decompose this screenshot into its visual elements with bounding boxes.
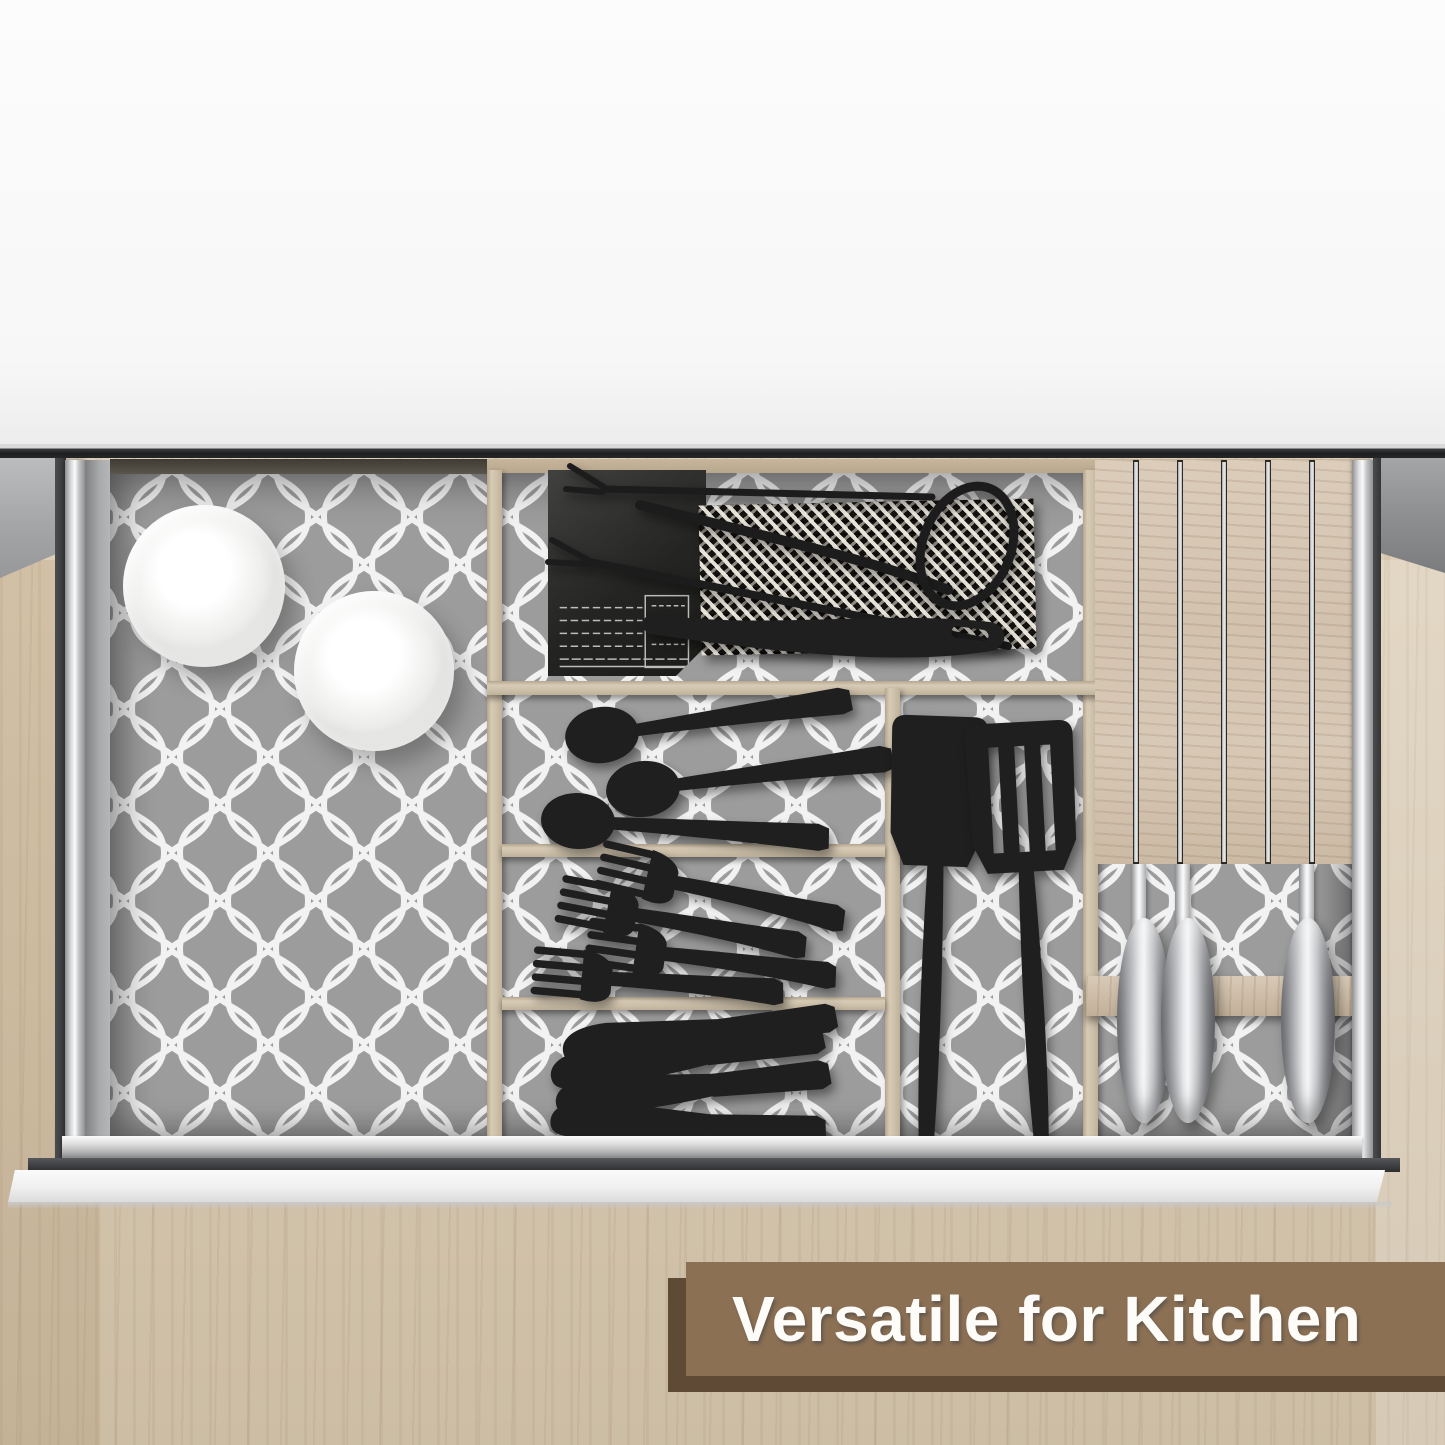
- knife-block-slat: [1139, 460, 1177, 864]
- building-print: [556, 592, 694, 672]
- steel-knife-handle-2: [1161, 918, 1215, 1123]
- divider-vertical-left: [487, 470, 502, 1138]
- drawer-side-inner-left: [85, 460, 110, 1138]
- knife-block-slat: [1271, 460, 1309, 864]
- ceramic-bowl-1: [123, 505, 285, 667]
- drawer-side-dark-right: [1373, 458, 1381, 1158]
- drawer-front-gap: [28, 1158, 1400, 1172]
- divider-vertical-middle: [885, 688, 900, 1138]
- bowl-gloss: [328, 621, 406, 693]
- knife-blade-slot-3: [1222, 462, 1226, 862]
- woven-mat: [698, 499, 1036, 656]
- ceramic-bowl-2: [294, 591, 454, 751]
- white-wall: [0, 0, 1445, 451]
- drawer-front-shadow: [8, 1202, 1392, 1209]
- divider-horizontal-middle: [502, 844, 885, 857]
- drawer-back-shadow: [110, 459, 490, 474]
- drawer-front-panel: [8, 1170, 1392, 1202]
- knife-block-slat: [1183, 460, 1221, 864]
- divider-horizontal-bottom: [502, 997, 885, 1010]
- banner: Versatile for Kitchen: [686, 1262, 1445, 1376]
- knife-blade-slot-5: [1310, 462, 1314, 862]
- knife-blade-slot-2: [1178, 462, 1182, 862]
- divider-horizontal-top: [487, 681, 1098, 695]
- steel-knife-handle-3: [1281, 918, 1335, 1123]
- knife-block-slat: [1227, 460, 1265, 864]
- bowl-gloss: [157, 535, 237, 609]
- knife-blade-slot-4: [1266, 462, 1270, 862]
- knife-blade-slot-1: [1134, 462, 1138, 862]
- knife-block-slat: [1315, 460, 1353, 864]
- knife-block-slat: [1095, 460, 1133, 864]
- drawer-front-rail: [62, 1136, 1362, 1158]
- kitchen-drawer-product-photo: Versatile for Kitchen: [0, 0, 1445, 1445]
- drawer-rail-left: [65, 460, 85, 1158]
- black-box: [548, 470, 706, 676]
- drawer-rail-right: [1352, 460, 1373, 1158]
- banner-label: Versatile for Kitchen: [732, 1282, 1361, 1356]
